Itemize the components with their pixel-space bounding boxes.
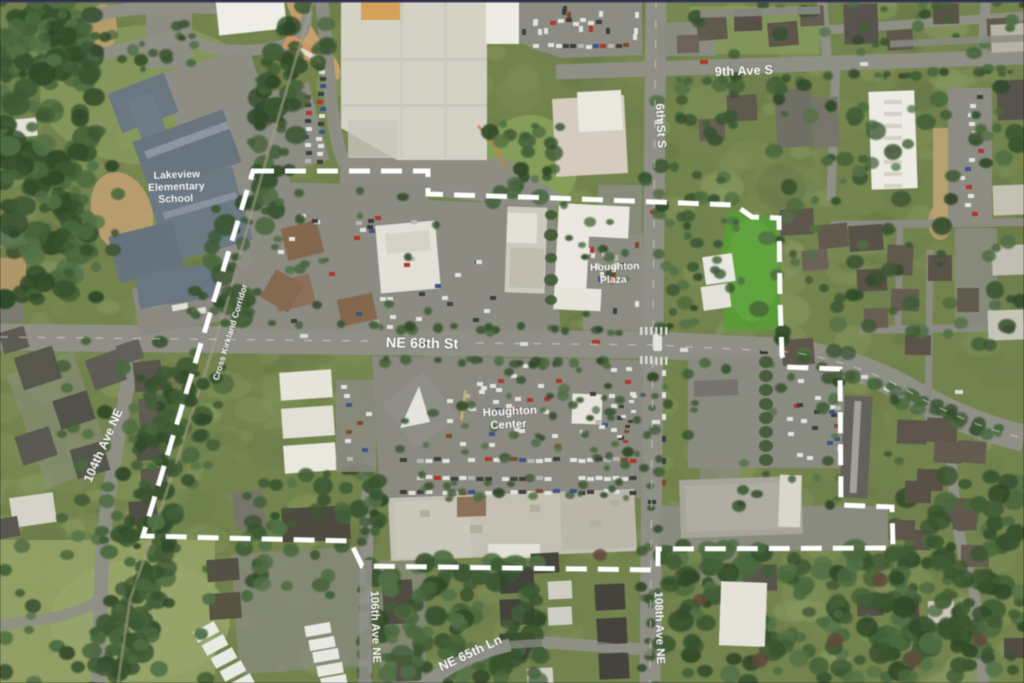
svg-text:106th Ave NE: 106th Ave NE — [368, 590, 383, 663]
svg-text:6th St S: 6th St S — [653, 103, 669, 148]
svg-text:NE 68th St: NE 68th St — [386, 335, 459, 352]
svg-text:9th Ave S: 9th Ave S — [714, 62, 773, 79]
svg-text:108th Ave NE: 108th Ave NE — [652, 591, 667, 664]
